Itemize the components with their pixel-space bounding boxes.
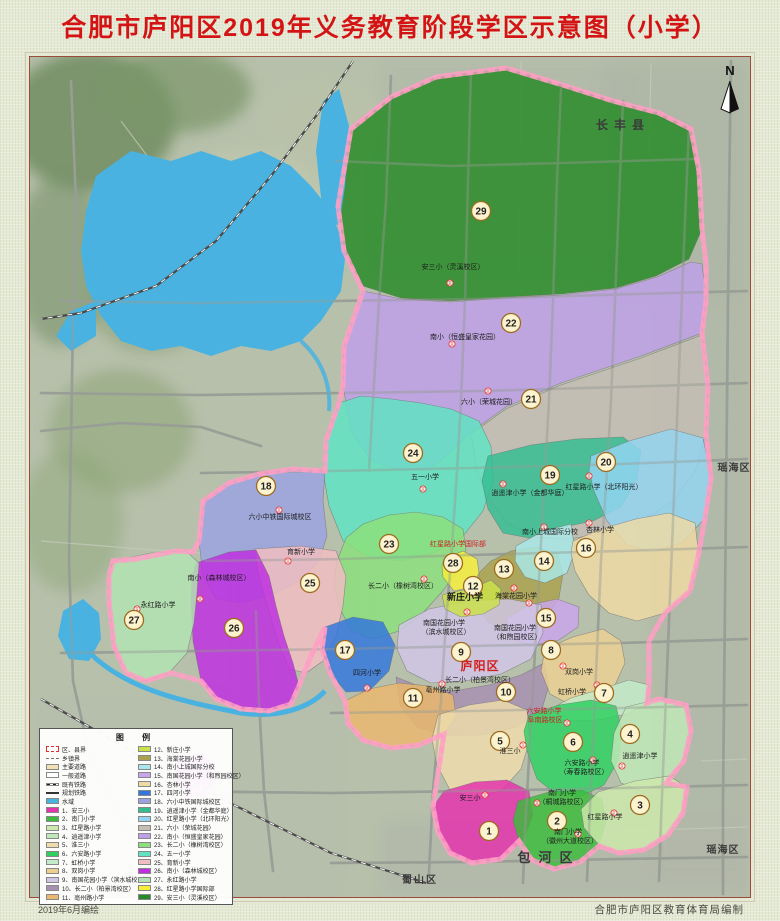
map-label-l10: 长二小（柏景湾校区） bbox=[445, 675, 515, 684]
map-label-l20: 红星路小学（北环阳光） bbox=[566, 482, 643, 491]
legend-swatch bbox=[46, 792, 59, 794]
legend-item: 7、虹桥小学 bbox=[46, 858, 132, 867]
school-marker-icon: 文 bbox=[449, 341, 455, 348]
legend-title: 图 例 bbox=[44, 732, 230, 743]
legend-item-label: 27、永红路小学 bbox=[154, 875, 197, 884]
edition-note: 2019年6月编绘 bbox=[38, 903, 99, 916]
svg-text:17: 17 bbox=[339, 646, 351, 657]
legend-item-label: 水域 bbox=[62, 797, 74, 806]
school-marker-icon: 文 bbox=[364, 685, 370, 692]
legend-item: 9、南国花园小学（滨水城校区） bbox=[46, 875, 132, 884]
legend-swatch bbox=[46, 807, 59, 813]
map-label-l17: 四河小学 bbox=[353, 668, 381, 677]
svg-text:24: 24 bbox=[407, 449, 419, 460]
svg-text:23: 23 bbox=[383, 540, 395, 551]
svg-text:6: 6 bbox=[570, 738, 576, 749]
map-label-l21: 六小（荣城花园） bbox=[461, 397, 517, 406]
legend-item: 29、安三小（灵溪校区） bbox=[138, 893, 234, 902]
zone-number-badge: 7 bbox=[595, 684, 614, 703]
legend-item-label: 12、新庄小学 bbox=[154, 745, 191, 754]
map-label-l6b: 阜南路校区 bbox=[528, 715, 563, 724]
zone-number-badge: 6 bbox=[564, 733, 583, 752]
map-label-l22: 南小（恒盛皇家花园） bbox=[430, 332, 500, 341]
legend-swatch bbox=[46, 825, 59, 831]
school-marker-icon: 文 bbox=[511, 585, 517, 592]
legend-swatch bbox=[138, 833, 151, 839]
legend-item: 规划铁路 bbox=[46, 788, 132, 797]
zone-number-badge: 15 bbox=[537, 609, 556, 628]
school-marker-icon: 文 bbox=[485, 388, 491, 395]
legend-item: 11、亳州路小学 bbox=[46, 893, 132, 902]
school-marker-icon: 文 bbox=[447, 280, 453, 287]
legend-swatch bbox=[138, 877, 151, 883]
map-label-l18: 六小中铁国际城校区 bbox=[249, 512, 312, 521]
legend-swatch bbox=[46, 894, 59, 900]
legend-swatch bbox=[138, 851, 151, 857]
district-label-baohe: 包河区 bbox=[517, 850, 580, 865]
legend-item-label: 15、南国花园小学（和煦园校区） bbox=[154, 771, 245, 780]
svg-text:29: 29 bbox=[475, 207, 487, 218]
map-label-l8: 双岗小学 bbox=[565, 667, 593, 676]
reservoir bbox=[81, 151, 346, 356]
legend-swatch bbox=[138, 772, 151, 778]
legend-item-label: 11、亳州路小学 bbox=[62, 893, 104, 902]
school-marker-icon: 文 bbox=[464, 609, 470, 616]
zone-number-badge: 1 bbox=[480, 822, 499, 841]
district-label-yaohai_s: 瑶海区 bbox=[707, 843, 740, 856]
school-marker-icon: 文 bbox=[564, 720, 570, 727]
legend-swatch bbox=[138, 755, 151, 761]
legend-item: 20、红星路小学（北环阳光） bbox=[138, 815, 234, 824]
zone-number-badge: 19 bbox=[541, 466, 560, 485]
map-label-l9a: 南国花园小学 bbox=[423, 618, 465, 627]
legend-item: 28、红星路小学国际部 bbox=[138, 884, 234, 893]
legend-item-label: 乡镇界 bbox=[62, 754, 80, 763]
legend-item-label: 17、四河小学 bbox=[154, 788, 191, 797]
district-label-shushan: 蜀山区 bbox=[402, 873, 438, 886]
legend-item-label: 6、六安路小学 bbox=[62, 849, 101, 858]
legend-item-label: 规划铁路 bbox=[62, 788, 86, 797]
legend-item-label: 5、淮三小 bbox=[62, 840, 89, 849]
zone-number-badge: 23 bbox=[380, 535, 399, 554]
legend-item-label: 18、六小中铁国际城校区 bbox=[154, 797, 221, 806]
svg-text:21: 21 bbox=[525, 395, 537, 406]
zone-number-badge: 18 bbox=[257, 477, 276, 496]
map-label-l15b: （和煦园校区） bbox=[493, 632, 542, 641]
zone-number-badge: 28 bbox=[444, 554, 463, 573]
school-marker-icon: 文 bbox=[482, 792, 488, 799]
svg-text:16: 16 bbox=[580, 544, 592, 555]
legend-item: 15、南国花园小学（和煦园校区） bbox=[138, 771, 234, 780]
district-label-luyang: 庐阳区 bbox=[460, 658, 499, 673]
map-label-l13: 海棠花园小学 bbox=[495, 591, 537, 600]
school-marker-icon: 文 bbox=[619, 763, 625, 770]
legend-item: 3、红星路小学 bbox=[46, 823, 132, 832]
map-label-l5: 淮三小 bbox=[500, 746, 521, 755]
zone-number-badge: 22 bbox=[502, 314, 521, 333]
legend-item: 24、五一小学 bbox=[138, 849, 234, 858]
legend-item: 21、六小（荣城花园） bbox=[138, 823, 234, 832]
legend-item: 5、淮三小 bbox=[46, 841, 132, 850]
legend-item: 19、逍遥津小学（金都华庭） bbox=[138, 806, 234, 815]
legend-item-label: 29、安三小（灵溪校区） bbox=[154, 893, 221, 902]
svg-text:15: 15 bbox=[540, 614, 552, 625]
legend-item: 水域 bbox=[46, 797, 132, 806]
north-label: N bbox=[725, 63, 734, 78]
map-label-l12: 新庄小学 bbox=[447, 591, 483, 602]
legend-item-label: 4、逍遥津小学 bbox=[62, 832, 101, 841]
map-label-l2c: 南门小学 bbox=[554, 827, 582, 836]
svg-text:3: 3 bbox=[637, 801, 643, 812]
map-label-l6a: 六安路小学 bbox=[527, 706, 562, 715]
svg-text:4: 4 bbox=[627, 730, 633, 741]
legend-item: 8、双岗小学 bbox=[46, 867, 132, 876]
map-label-l29: 安三小（灵溪校区） bbox=[422, 262, 485, 271]
svg-text:5: 5 bbox=[497, 737, 503, 748]
zone-number-badge: 16 bbox=[577, 539, 596, 558]
legend-swatch bbox=[138, 842, 151, 848]
svg-text:26: 26 bbox=[228, 624, 240, 635]
zone-number-badge: 29 bbox=[472, 202, 491, 221]
legend-swatch bbox=[138, 885, 151, 891]
svg-text:27: 27 bbox=[128, 616, 140, 627]
svg-text:7: 7 bbox=[601, 689, 607, 700]
zone-number-badge: 26 bbox=[225, 619, 244, 638]
legend-swatch bbox=[46, 746, 59, 752]
legend-item-label: 13、海棠花园小学 bbox=[154, 754, 203, 763]
school-marker-icon: 文 bbox=[526, 600, 532, 607]
svg-text:22: 22 bbox=[505, 319, 517, 330]
map-label-l3: 红星路小学 bbox=[588, 812, 623, 821]
district-label-changfeng: 长丰县 bbox=[596, 117, 650, 132]
legend-item-label: 主要道路 bbox=[62, 762, 86, 771]
school-marker-icon: 文 bbox=[421, 576, 427, 583]
svg-text:8: 8 bbox=[548, 646, 554, 657]
legend-swatch bbox=[46, 859, 59, 865]
svg-text:20: 20 bbox=[600, 458, 612, 469]
legend-swatch bbox=[46, 833, 59, 839]
legend-item: 25、育新小学 bbox=[138, 858, 234, 867]
legend-item: 2、南门小学 bbox=[46, 815, 132, 824]
svg-text:28: 28 bbox=[447, 559, 459, 570]
legend-swatch bbox=[138, 764, 151, 770]
legend-swatch bbox=[46, 885, 59, 891]
legend-item-label: 一般道路 bbox=[62, 771, 86, 780]
svg-text:18: 18 bbox=[260, 482, 272, 493]
map-label-l11: 亳州路小学 bbox=[426, 685, 461, 694]
map-canvas: 文文文文文文文文文文文文文文文文文文文文文文文文文文文文文 1234567891… bbox=[29, 56, 751, 898]
legend-swatch bbox=[46, 764, 59, 770]
legend-item-label: 1、安三小 bbox=[62, 806, 89, 815]
svg-text:1: 1 bbox=[486, 827, 492, 838]
school-marker-icon: 文 bbox=[420, 486, 426, 493]
legend-swatch bbox=[138, 825, 151, 831]
svg-text:12: 12 bbox=[467, 582, 479, 593]
legend-swatch bbox=[138, 894, 151, 900]
map-label-l28: 红星路小学国际部 bbox=[430, 539, 486, 548]
legend-item: 26、南小（森林城校区） bbox=[138, 867, 234, 876]
legend-swatch bbox=[46, 877, 59, 883]
legend-column-left: 区、县界乡镇界主要道路一般道路既有铁路规划铁路水域1、安三小2、南门小学3、红星… bbox=[46, 745, 132, 901]
zone-number-badge: 11 bbox=[404, 689, 423, 708]
zone-number-badge: 21 bbox=[522, 390, 541, 409]
map-label-l2d: （徽州大道校区） bbox=[542, 836, 598, 845]
legend-swatch bbox=[138, 781, 151, 787]
map-label-l24: 五一小学 bbox=[411, 472, 439, 481]
map-label-l16: 杏林小学 bbox=[586, 525, 614, 534]
zone-number-badge: 20 bbox=[597, 453, 616, 472]
legend-columns: 区、县界乡镇界主要道路一般道路既有铁路规划铁路水域1、安三小2、南门小学3、红星… bbox=[44, 745, 230, 903]
legend-item: 10、长二小（柏景湾校区） bbox=[46, 884, 132, 893]
svg-text:14: 14 bbox=[538, 557, 550, 568]
legend-item-label: 3、红星路小学 bbox=[62, 823, 101, 832]
legend-item-label: 8、双岗小学 bbox=[62, 866, 95, 875]
legend-item: 既有铁路 bbox=[46, 780, 132, 789]
map-label-l25: 育新小学 bbox=[287, 547, 315, 556]
legend-item-label: 23、长二小（橡树湾校区） bbox=[154, 840, 227, 849]
legend-item-label: 2、南门小学 bbox=[62, 814, 95, 823]
svg-text:2: 2 bbox=[554, 817, 560, 828]
legend-item: 4、逍遥津小学 bbox=[46, 832, 132, 841]
zone-number-badge: 24 bbox=[404, 444, 423, 463]
legend-item-label: 25、育新小学 bbox=[154, 858, 191, 867]
zone-number-badge: 4 bbox=[621, 725, 640, 744]
school-marker-icon: 文 bbox=[586, 473, 592, 480]
map-label-l2a: 南门小学 bbox=[548, 788, 576, 797]
map-label-l26: 南小（森林城校区） bbox=[188, 573, 251, 582]
school-marker-icon: 文 bbox=[276, 507, 282, 514]
map-label-l4: 逍遥津小学 bbox=[623, 751, 658, 760]
school-marker-icon: 文 bbox=[500, 481, 506, 488]
zone-number-badge: 8 bbox=[542, 641, 561, 660]
map-label-l2b: （桐城路校区） bbox=[539, 797, 588, 806]
legend-item-label: 21、六小（荣城花园） bbox=[154, 823, 215, 832]
legend-swatch bbox=[138, 790, 151, 796]
legend-swatch bbox=[46, 798, 59, 804]
map-label-l9b: （滨水城校区） bbox=[422, 627, 471, 636]
map-label-l14: 南小上城国际分校 bbox=[522, 527, 578, 536]
zone-number-badge: 27 bbox=[125, 611, 144, 630]
map-label-l15a: 南国花园小学 bbox=[494, 623, 536, 632]
map-label-l6d: （寿春路校区） bbox=[560, 767, 609, 776]
legend-swatch bbox=[46, 842, 59, 848]
map-label-l6c: 六安路小学 bbox=[565, 758, 600, 767]
map-label-l27: 永红路小学 bbox=[141, 600, 176, 609]
legend-swatch bbox=[46, 758, 59, 759]
svg-text:19: 19 bbox=[544, 471, 556, 482]
legend-swatch bbox=[138, 816, 151, 822]
school-marker-icon: 文 bbox=[197, 596, 203, 603]
map-label-l23: 长二小（橡树湾校区） bbox=[368, 581, 438, 590]
legend-item: 22、南小（恒盛皇家花园） bbox=[138, 832, 234, 841]
legend-swatch bbox=[46, 851, 59, 857]
map-label-l19: 逍遥津小学（金都华庭） bbox=[492, 488, 569, 497]
zone-number-badge: 14 bbox=[535, 552, 554, 571]
legend-item: 27、永红路小学 bbox=[138, 875, 234, 884]
map-label-l7: 虹桥小学 bbox=[558, 687, 586, 696]
legend-item-label: 26、南小（森林城校区） bbox=[154, 866, 221, 875]
legend-item: 13、海棠花园小学 bbox=[138, 754, 234, 763]
zone-number-badge: 10 bbox=[497, 683, 516, 702]
legend-item: 乡镇界 bbox=[46, 754, 132, 763]
publisher-note: 合肥市庐阳区教育体育局编制 bbox=[595, 902, 745, 917]
legend-item: 16、杏林小学 bbox=[138, 780, 234, 789]
legend-item: 14、南小上城国际分校 bbox=[138, 762, 234, 771]
legend-item-label: 既有铁路 bbox=[62, 780, 86, 789]
zone-number-badge: 25 bbox=[301, 574, 320, 593]
zone-number-badge: 3 bbox=[631, 796, 650, 815]
legend-swatch bbox=[46, 816, 59, 822]
legend-item: 17、四河小学 bbox=[138, 788, 234, 797]
legend-item-label: 16、杏林小学 bbox=[154, 780, 191, 789]
legend-item: 区、县界 bbox=[46, 745, 132, 754]
legend-item: 18、六小中铁国际城校区 bbox=[138, 797, 234, 806]
school-marker-icon: 文 bbox=[586, 520, 592, 527]
svg-text:9: 9 bbox=[458, 648, 464, 659]
legend: 图 例 区、县界乡镇界主要道路一般道路既有铁路规划铁路水域1、安三小2、南门小学… bbox=[39, 728, 233, 905]
legend-item: 1、安三小 bbox=[46, 806, 132, 815]
legend-item-label: 14、南小上城国际分校 bbox=[154, 762, 215, 771]
legend-swatch bbox=[138, 746, 151, 752]
page-title: 合肥市庐阳区2019年义务教育阶段学区示意图（小学） bbox=[0, 8, 780, 44]
legend-swatch bbox=[46, 868, 59, 874]
legend-item-label: 22、南小（恒盛皇家花园） bbox=[154, 832, 227, 841]
svg-text:25: 25 bbox=[304, 579, 316, 590]
legend-item: 主要道路 bbox=[46, 762, 132, 771]
svg-text:10: 10 bbox=[500, 688, 512, 699]
zone-number-badge: 2 bbox=[548, 812, 567, 831]
legend-item-label: 19、逍遥津小学（金都华庭） bbox=[154, 806, 233, 815]
map-label-l1: 安三小 bbox=[460, 793, 481, 802]
legend-swatch bbox=[138, 807, 151, 813]
legend-swatch bbox=[138, 868, 151, 874]
legend-item: 一般道路 bbox=[46, 771, 132, 780]
legend-swatch bbox=[46, 783, 59, 786]
legend-column-right: 12、新庄小学13、海棠花园小学14、南小上城国际分校15、南国花园小学（和煦园… bbox=[138, 745, 234, 901]
legend-swatch bbox=[138, 859, 151, 865]
legend-swatch bbox=[138, 798, 151, 804]
legend-item: 12、新庄小学 bbox=[138, 745, 234, 754]
legend-item-label: 9、南国花园小学（滨水城校区） bbox=[62, 875, 149, 884]
svg-text:13: 13 bbox=[498, 565, 510, 576]
zone-number-badge: 13 bbox=[495, 560, 514, 579]
zone-number-badge: 17 bbox=[336, 641, 355, 660]
school-marker-icon: 文 bbox=[520, 742, 526, 749]
legend-item-label: 区、县界 bbox=[62, 745, 86, 754]
legend-item-label: 28、红星路小学国际部 bbox=[154, 884, 215, 893]
legend-item-label: 20、红星路小学（北环阳光） bbox=[154, 814, 233, 823]
legend-item-label: 24、五一小学 bbox=[154, 849, 191, 858]
legend-item: 6、六安路小学 bbox=[46, 849, 132, 858]
legend-item-label: 10、长二小（柏景湾校区） bbox=[62, 884, 135, 893]
legend-swatch bbox=[46, 772, 59, 778]
svg-text:11: 11 bbox=[408, 694, 419, 705]
legend-item: 23、长二小（橡树湾校区） bbox=[138, 841, 234, 850]
school-marker-icon: 文 bbox=[285, 558, 291, 565]
district-label-yaohai_e: 瑶海区 bbox=[718, 461, 751, 474]
legend-item-label: 7、虹桥小学 bbox=[62, 858, 95, 867]
